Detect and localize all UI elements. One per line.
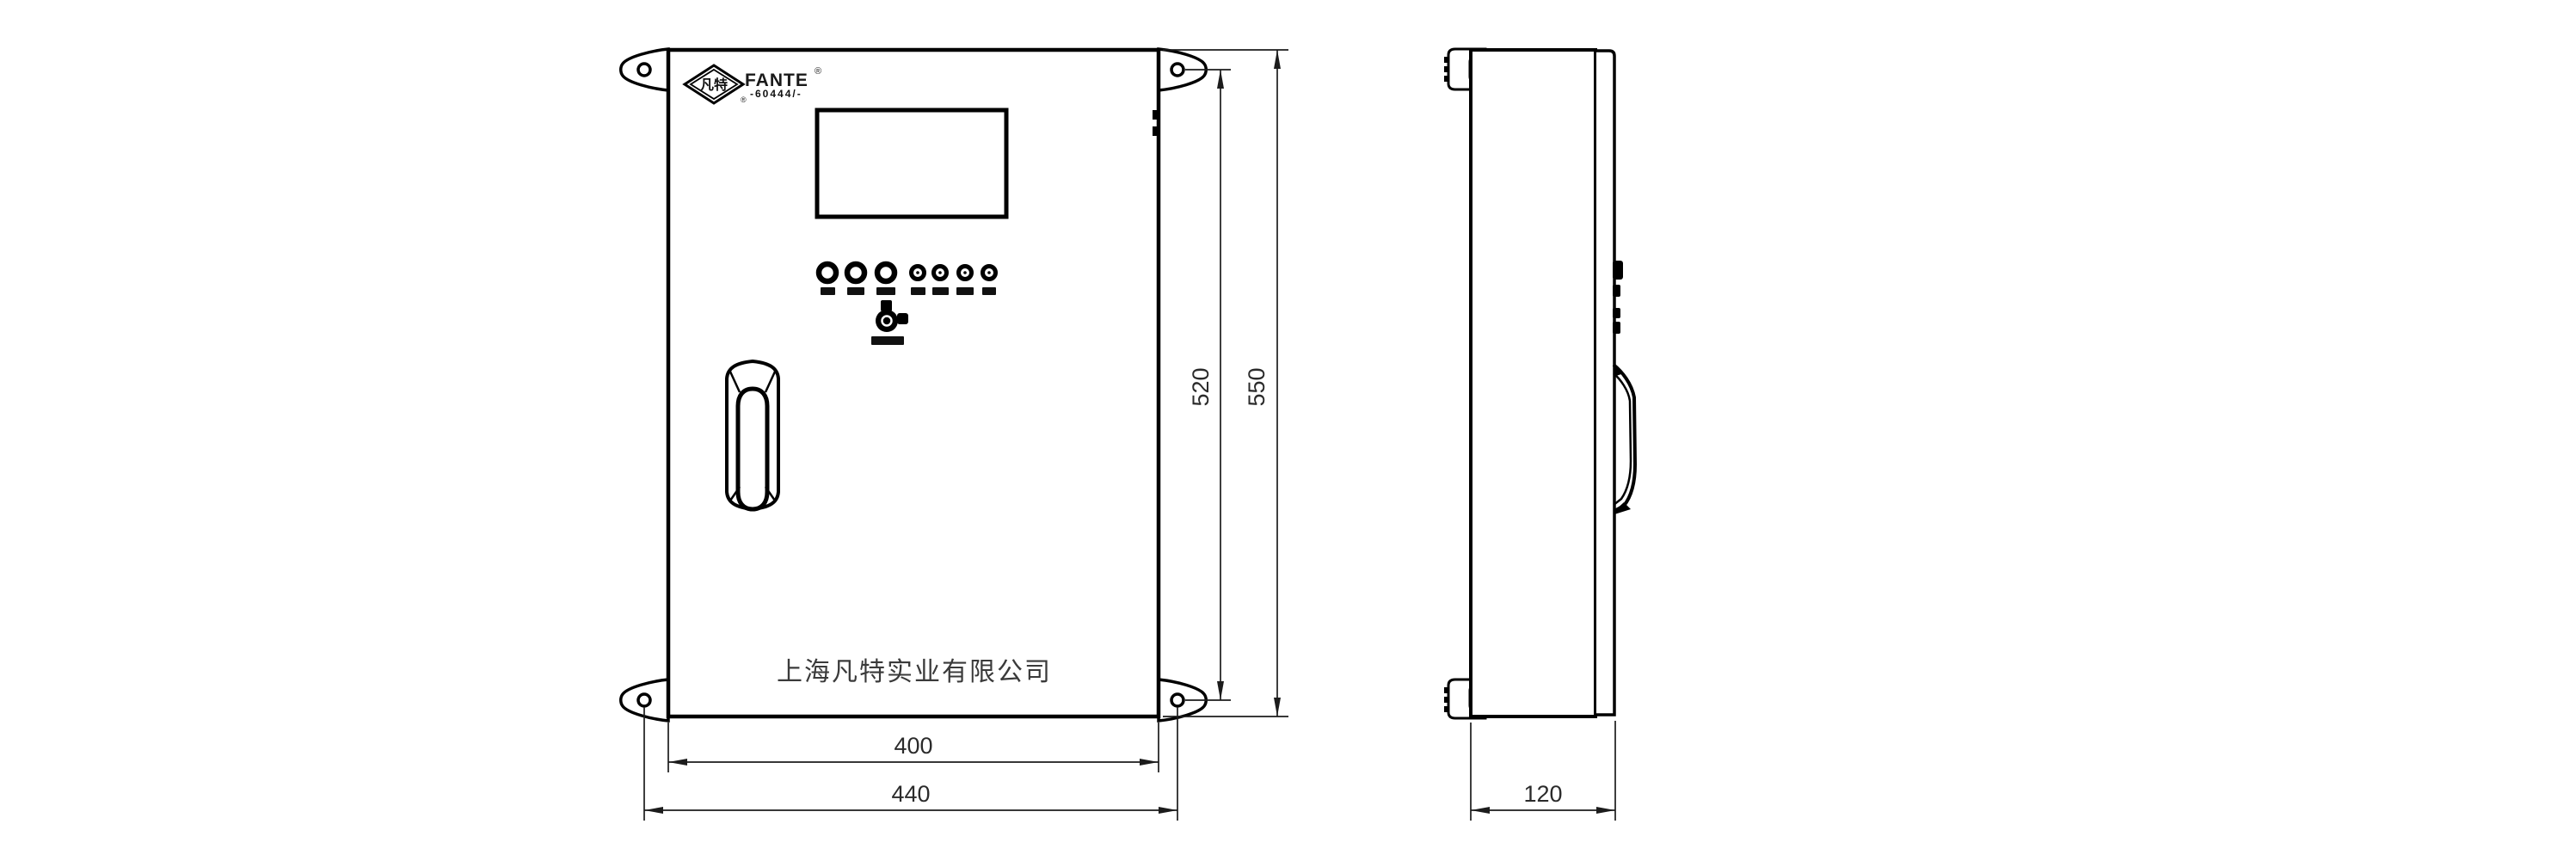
indicator-label-5 xyxy=(932,287,949,295)
ear-hole-bottom-left xyxy=(638,694,650,706)
side-body xyxy=(1471,50,1595,716)
ear-hole-top-left xyxy=(638,64,650,76)
indicator-label-2 xyxy=(847,287,864,295)
logo: 凡特 FANTE ® ® -60444/- xyxy=(685,65,821,104)
logo-tagline: -60444/- xyxy=(750,88,802,100)
ear-hole-top-right xyxy=(1171,64,1183,76)
key-switch-label xyxy=(871,336,904,345)
indicator-label-1 xyxy=(821,287,835,295)
side-handle-profile xyxy=(1614,363,1635,514)
registered-mark-small: ® xyxy=(741,95,747,104)
dimension-520: 520 xyxy=(1185,70,1231,700)
front-view: 凡特 FANTE ® ® -60444/- xyxy=(621,49,1207,721)
dimension-550: 550 xyxy=(1163,50,1288,716)
dim-440-label: 440 xyxy=(891,781,930,807)
logo-diamond-text: 凡特 xyxy=(700,77,728,93)
side-door-panel xyxy=(1596,51,1614,715)
indicator-label-7 xyxy=(982,287,996,295)
registered-mark: ® xyxy=(815,66,821,77)
display-screen xyxy=(817,110,1006,217)
dim-120-label: 120 xyxy=(1523,781,1562,807)
side-view xyxy=(1444,49,1635,718)
drawing-canvas: 凡特 FANTE ® ® -60444/- xyxy=(0,0,2576,861)
side-dimensions: 120 xyxy=(1471,721,1615,821)
company-name: 上海凡特实业有限公司 xyxy=(777,658,1052,686)
dimension-120: 120 xyxy=(1471,721,1615,821)
dim-520-label: 520 xyxy=(1188,367,1214,406)
dimension-440: 440 xyxy=(644,707,1177,821)
bracket-teeth xyxy=(1444,57,1448,712)
indicator-label-4 xyxy=(911,287,925,295)
dim-550-label: 550 xyxy=(1244,367,1270,406)
technical-drawing: 凡特 FANTE ® ® -60444/- xyxy=(0,0,2576,861)
indicator-label-3 xyxy=(876,287,895,295)
ear-hole-bottom-right xyxy=(1171,694,1183,706)
dimension-400: 400 xyxy=(668,723,1159,772)
dim-400-label: 400 xyxy=(894,733,932,759)
indicator-label-6 xyxy=(956,287,974,295)
